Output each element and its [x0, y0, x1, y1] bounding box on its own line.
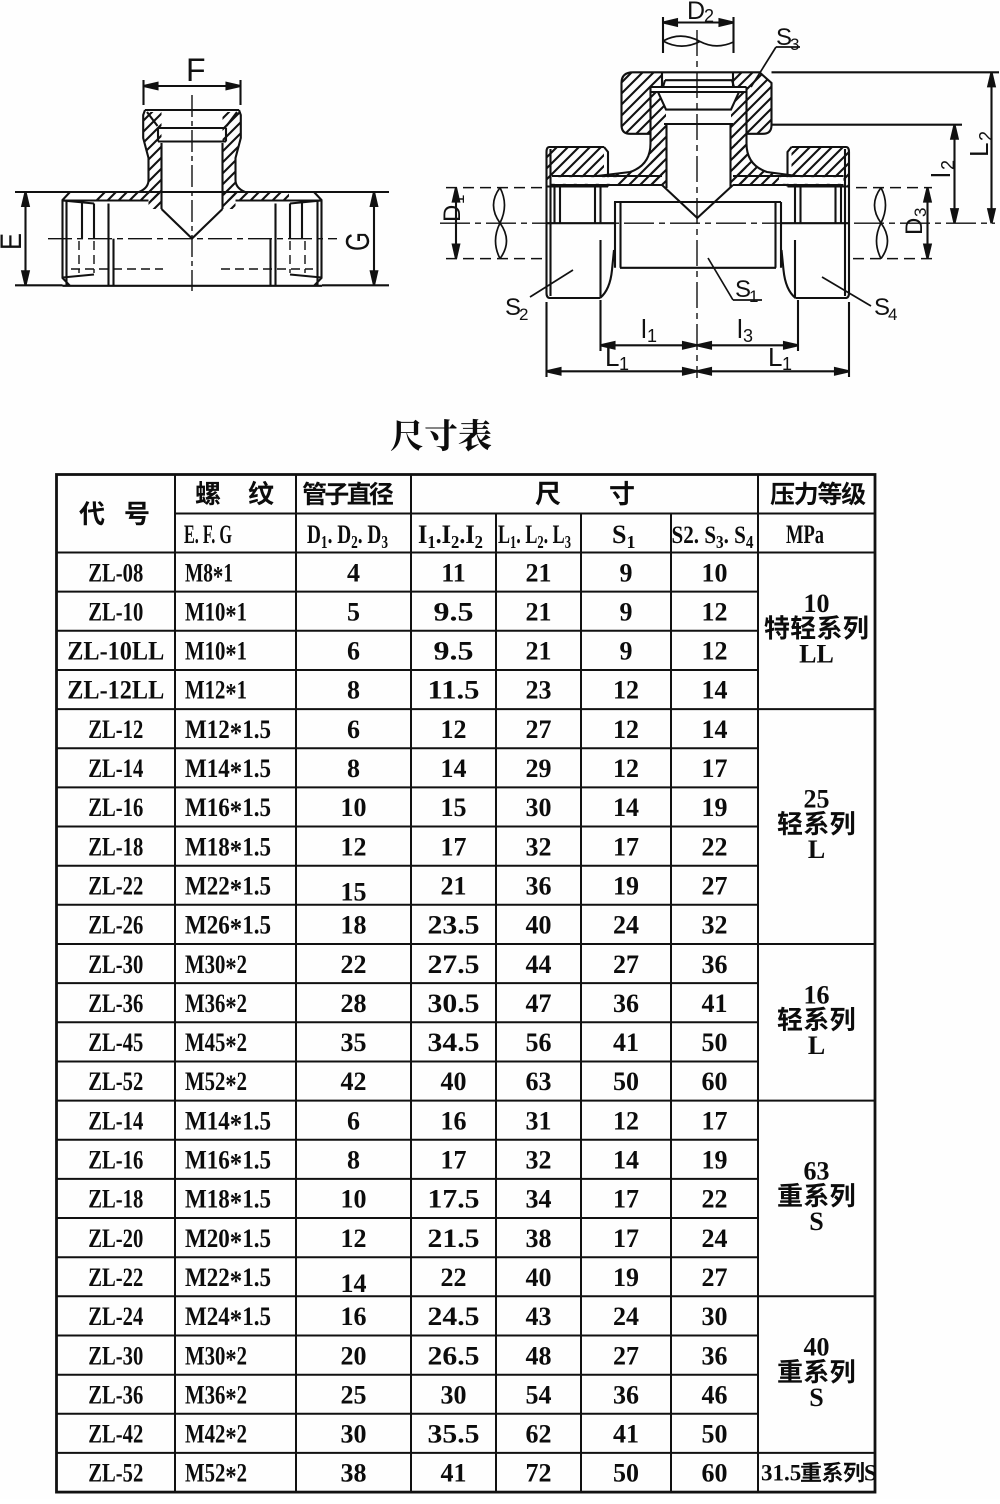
svg-text:28: 28 [341, 989, 367, 1018]
svg-text:21: 21 [441, 872, 467, 901]
svg-text:ZL-22: ZL-22 [88, 872, 143, 901]
svg-text:50: 50 [613, 1067, 639, 1096]
svg-text:4: 4 [888, 305, 897, 324]
svg-text:34.5: 34.5 [428, 1028, 480, 1057]
svg-text:E: E [0, 233, 28, 250]
svg-text:22: 22 [341, 950, 367, 979]
svg-text:14: 14 [613, 793, 639, 822]
svg-text:14: 14 [441, 754, 467, 783]
svg-text:2: 2 [519, 305, 528, 324]
svg-text:L: L [808, 835, 825, 864]
svg-text:50: 50 [702, 1028, 728, 1057]
svg-text:l: l [641, 314, 647, 344]
svg-text:ZL-12LL: ZL-12LL [67, 676, 164, 705]
svg-text:24.5: 24.5 [428, 1302, 480, 1331]
svg-text:ZL-10LL: ZL-10LL [67, 637, 164, 666]
svg-text:32: 32 [526, 832, 552, 861]
svg-text:19: 19 [702, 1146, 728, 1175]
svg-text:1: 1 [647, 326, 657, 346]
svg-text:8: 8 [347, 676, 360, 705]
svg-text:ZL-26: ZL-26 [88, 911, 143, 940]
svg-text:ZL-14: ZL-14 [88, 754, 143, 783]
svg-text:22: 22 [702, 832, 728, 861]
svg-text:23: 23 [526, 676, 552, 705]
svg-text:27: 27 [702, 872, 728, 901]
svg-text:38: 38 [526, 1224, 552, 1253]
svg-text:36: 36 [702, 1341, 728, 1370]
svg-text:9.5: 9.5 [434, 597, 474, 626]
svg-text:30: 30 [526, 793, 552, 822]
svg-text:15: 15 [341, 878, 367, 907]
svg-text:14: 14 [702, 715, 728, 744]
svg-text:36: 36 [702, 950, 728, 979]
svg-text:40: 40 [441, 1067, 467, 1096]
svg-text:LL: LL [799, 639, 834, 668]
svg-text:S2. S3. S4: S2. S3. S4 [672, 522, 754, 552]
svg-text:36: 36 [613, 1380, 639, 1409]
svg-text:1: 1 [619, 354, 629, 374]
svg-text:S: S [864, 1461, 877, 1486]
svg-text:27: 27 [613, 1341, 639, 1370]
svg-text:14: 14 [702, 676, 728, 705]
svg-text:10: 10 [341, 793, 367, 822]
svg-text:ZL-24: ZL-24 [88, 1302, 143, 1331]
svg-text:40: 40 [804, 1333, 830, 1362]
svg-text:ZL-20: ZL-20 [88, 1224, 143, 1253]
svg-text:9: 9 [620, 558, 633, 587]
svg-text:19: 19 [613, 872, 639, 901]
svg-text:ZL-30: ZL-30 [88, 950, 143, 979]
svg-text:ZL-16: ZL-16 [88, 1146, 143, 1175]
svg-text:29: 29 [526, 754, 552, 783]
svg-text:62: 62 [526, 1420, 552, 1449]
svg-text:2: 2 [704, 6, 714, 26]
svg-text:F: F [186, 52, 206, 88]
svg-text:63: 63 [526, 1067, 552, 1096]
svg-text:16: 16 [441, 1106, 467, 1135]
svg-text:31.5: 31.5 [761, 1461, 801, 1486]
svg-text:12: 12 [341, 1224, 367, 1253]
svg-text:17: 17 [441, 832, 467, 861]
svg-text:6: 6 [347, 1106, 360, 1135]
svg-text:12: 12 [441, 715, 467, 744]
svg-text:1: 1 [782, 354, 792, 374]
svg-text:3: 3 [790, 35, 799, 54]
svg-text:20: 20 [341, 1341, 367, 1370]
svg-text:3: 3 [911, 208, 930, 217]
svg-text:21.5: 21.5 [428, 1224, 480, 1253]
svg-text:40: 40 [526, 911, 552, 940]
svg-text:21: 21 [526, 597, 552, 626]
svg-text:30: 30 [341, 1420, 367, 1449]
svg-text:L: L [964, 143, 994, 157]
svg-text:ZL-08: ZL-08 [88, 558, 143, 587]
svg-text:25: 25 [804, 785, 830, 814]
svg-text:27: 27 [702, 1263, 728, 1292]
svg-text:38: 38 [341, 1459, 367, 1488]
svg-text:ZL-36: ZL-36 [88, 1380, 143, 1409]
svg-text:3: 3 [743, 326, 753, 346]
svg-text:ZL-45: ZL-45 [88, 1028, 143, 1057]
svg-text:43: 43 [526, 1302, 552, 1331]
svg-text:D: D [901, 218, 928, 235]
svg-text:10: 10 [702, 558, 728, 587]
svg-text:ZL-18: ZL-18 [88, 1185, 143, 1214]
svg-text:16: 16 [804, 980, 830, 1009]
svg-text:27: 27 [526, 715, 552, 744]
svg-text:9: 9 [620, 597, 633, 626]
svg-text:ZL-52: ZL-52 [88, 1067, 143, 1096]
svg-text:41: 41 [441, 1459, 467, 1488]
svg-text:10: 10 [341, 1185, 367, 1214]
svg-text:6: 6 [347, 715, 360, 744]
svg-text:24: 24 [613, 911, 639, 940]
svg-text:2: 2 [976, 131, 996, 141]
svg-text:8: 8 [347, 754, 360, 783]
svg-text:ZL-16: ZL-16 [88, 793, 143, 822]
svg-text:19: 19 [613, 1263, 639, 1292]
svg-text:48: 48 [526, 1341, 552, 1370]
svg-text:17.5: 17.5 [428, 1185, 480, 1214]
svg-text:12: 12 [341, 832, 367, 861]
svg-text:10: 10 [804, 589, 830, 618]
svg-text:41: 41 [613, 1028, 639, 1057]
svg-text:ZL-30: ZL-30 [88, 1341, 143, 1370]
svg-text:36: 36 [526, 872, 552, 901]
svg-text:5: 5 [347, 597, 360, 626]
svg-text:32: 32 [702, 911, 728, 940]
svg-text:50: 50 [702, 1420, 728, 1449]
svg-text:17: 17 [613, 832, 639, 861]
svg-text:35.5: 35.5 [428, 1420, 480, 1449]
svg-text:50: 50 [613, 1459, 639, 1488]
svg-text:12: 12 [613, 715, 639, 744]
svg-text:41: 41 [702, 989, 728, 1018]
svg-text:27.5: 27.5 [428, 950, 480, 979]
svg-text:4: 4 [347, 558, 360, 587]
svg-text:9: 9 [620, 637, 633, 666]
svg-text:D: D [439, 205, 466, 222]
svg-text:ZL-22: ZL-22 [88, 1263, 143, 1292]
svg-text:1: 1 [449, 195, 468, 204]
svg-text:15: 15 [441, 793, 467, 822]
svg-text:L1. L2. L3: L1. L2. L3 [498, 520, 571, 552]
svg-text:24: 24 [702, 1224, 728, 1253]
svg-text:42: 42 [341, 1067, 367, 1096]
svg-text:30.5: 30.5 [428, 989, 480, 1018]
svg-text:17: 17 [613, 1185, 639, 1214]
svg-text:G: G [339, 232, 376, 251]
svg-text:ZL-12: ZL-12 [88, 715, 143, 744]
svg-text:8: 8 [347, 1146, 360, 1175]
svg-text:12: 12 [702, 637, 728, 666]
svg-text:60: 60 [702, 1067, 728, 1096]
svg-text:63: 63 [804, 1157, 830, 1186]
svg-text:40: 40 [526, 1263, 552, 1292]
svg-text:18: 18 [341, 911, 367, 940]
svg-text:ZL-18: ZL-18 [88, 832, 143, 861]
svg-text:60: 60 [702, 1459, 728, 1488]
svg-text:23.5: 23.5 [428, 911, 480, 940]
svg-text:24: 24 [613, 1302, 639, 1331]
svg-text:47: 47 [526, 989, 552, 1018]
svg-text:E. F. G: E. F. G [184, 520, 232, 549]
svg-text:44: 44 [526, 950, 552, 979]
svg-text:D1. D2. D3: D1. D2. D3 [307, 520, 388, 552]
svg-text:36: 36 [613, 989, 639, 1018]
svg-text:2: 2 [938, 160, 958, 170]
svg-text:30: 30 [702, 1302, 728, 1331]
svg-text:30: 30 [441, 1380, 467, 1409]
svg-text:ZL-52: ZL-52 [88, 1459, 143, 1488]
svg-text:22: 22 [441, 1263, 467, 1292]
svg-text:MPa: MPa [786, 520, 824, 549]
svg-text:19: 19 [702, 793, 728, 822]
svg-text:12: 12 [613, 754, 639, 783]
svg-text:21: 21 [526, 558, 552, 587]
svg-text:17: 17 [702, 754, 728, 783]
svg-text:ZL-42: ZL-42 [88, 1420, 143, 1449]
svg-text:54: 54 [526, 1380, 552, 1409]
svg-text:25: 25 [341, 1380, 367, 1409]
svg-text:32: 32 [526, 1146, 552, 1175]
svg-text:6: 6 [347, 637, 360, 666]
svg-text:9.5: 9.5 [434, 637, 474, 666]
svg-text:12: 12 [702, 597, 728, 626]
svg-text:L: L [605, 342, 619, 372]
svg-text:12: 12 [613, 676, 639, 705]
svg-text:17: 17 [613, 1224, 639, 1253]
svg-text:27: 27 [613, 950, 639, 979]
svg-text:41: 41 [613, 1420, 639, 1449]
svg-text:31: 31 [526, 1106, 552, 1135]
svg-text:17: 17 [702, 1106, 728, 1135]
svg-text:1: 1 [749, 287, 758, 306]
svg-text:ZL-36: ZL-36 [88, 989, 143, 1018]
svg-text:72: 72 [526, 1459, 552, 1488]
svg-text:56: 56 [526, 1028, 552, 1057]
svg-text:D: D [687, 0, 705, 25]
svg-text:34: 34 [526, 1185, 552, 1214]
svg-text:26.5: 26.5 [428, 1341, 480, 1370]
svg-text:11.5: 11.5 [428, 676, 480, 705]
svg-text:17: 17 [441, 1146, 467, 1175]
svg-text:46: 46 [702, 1380, 728, 1409]
svg-text:L: L [808, 1031, 825, 1060]
svg-text:14: 14 [341, 1269, 367, 1298]
svg-text:S: S [809, 1207, 823, 1236]
svg-text:l: l [926, 172, 956, 178]
svg-text:S: S [809, 1383, 823, 1412]
svg-text:21: 21 [526, 637, 552, 666]
svg-text:L: L [768, 342, 782, 372]
svg-text:16: 16 [341, 1302, 367, 1331]
svg-text:35: 35 [341, 1028, 367, 1057]
svg-text:ZL-10: ZL-10 [88, 597, 143, 626]
svg-text:ZL-14: ZL-14 [88, 1106, 143, 1135]
svg-text:22: 22 [702, 1185, 728, 1214]
svg-text:12: 12 [613, 1106, 639, 1135]
svg-text:l: l [737, 314, 743, 344]
svg-text:14: 14 [613, 1146, 639, 1175]
svg-text:11: 11 [441, 558, 466, 587]
